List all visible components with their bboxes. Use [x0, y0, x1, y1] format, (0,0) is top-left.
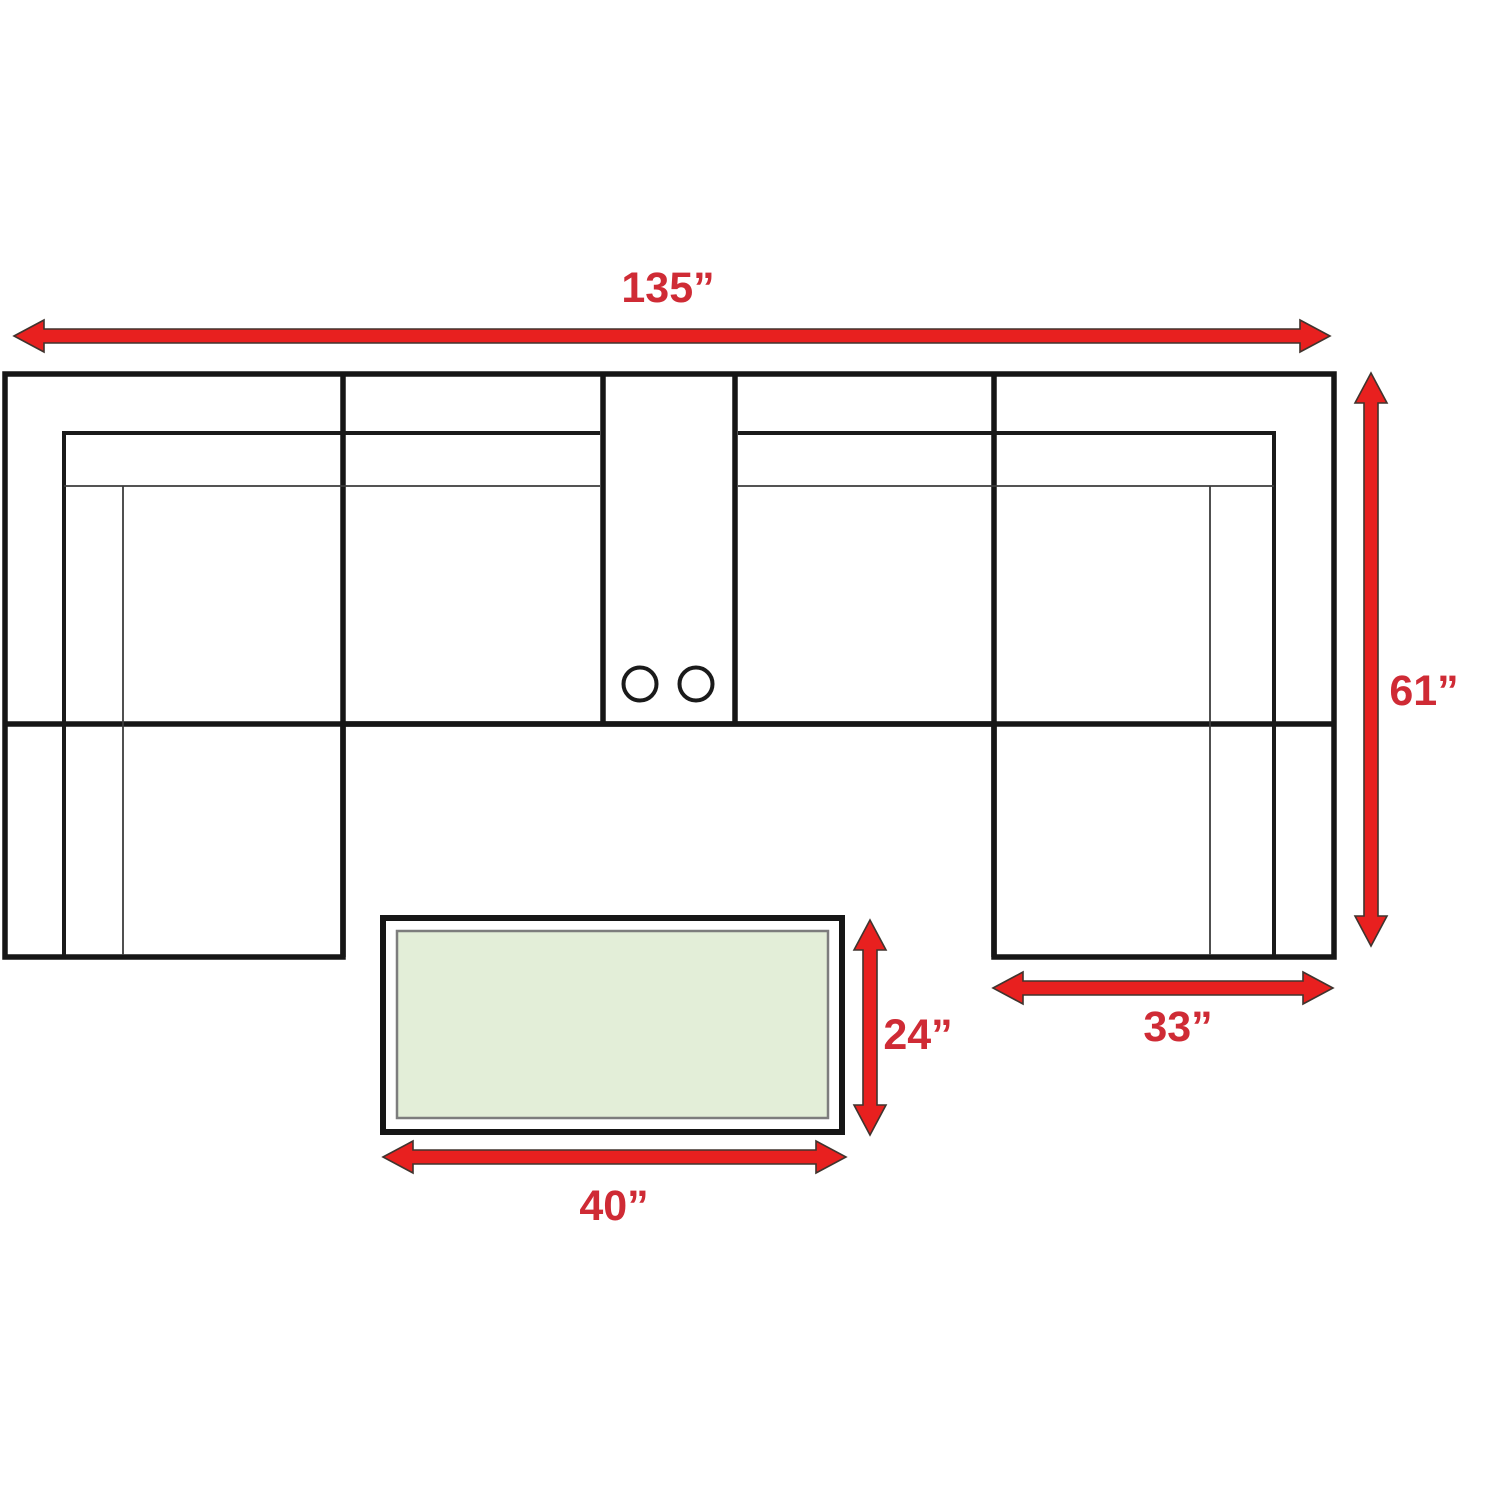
dimension-label-chaise-width: 33”	[1143, 1003, 1212, 1051]
arrow-overall-depth	[1355, 373, 1387, 946]
arrow-table-depth	[854, 920, 886, 1135]
dimension-label-table-depth: 24”	[883, 1011, 952, 1059]
cupholder-left-icon	[624, 668, 657, 701]
coffee-table	[383, 918, 842, 1132]
arrow-overall-width	[14, 320, 1330, 352]
dimension-label-table-width: 40”	[579, 1182, 648, 1230]
sectional-sofa	[5, 374, 1334, 957]
coffee-table-top	[397, 931, 828, 1118]
arrow-table-width	[383, 1141, 846, 1173]
cupholder-right-icon	[680, 668, 713, 701]
sofa-outline	[5, 374, 1334, 957]
dimension-diagram: 135” 61” 33” 24” 40”	[0, 0, 1500, 1500]
dimension-label-overall-depth: 61”	[1389, 667, 1458, 715]
dimension-label-overall-width: 135”	[621, 264, 714, 312]
arrow-chaise-width	[993, 972, 1333, 1004]
